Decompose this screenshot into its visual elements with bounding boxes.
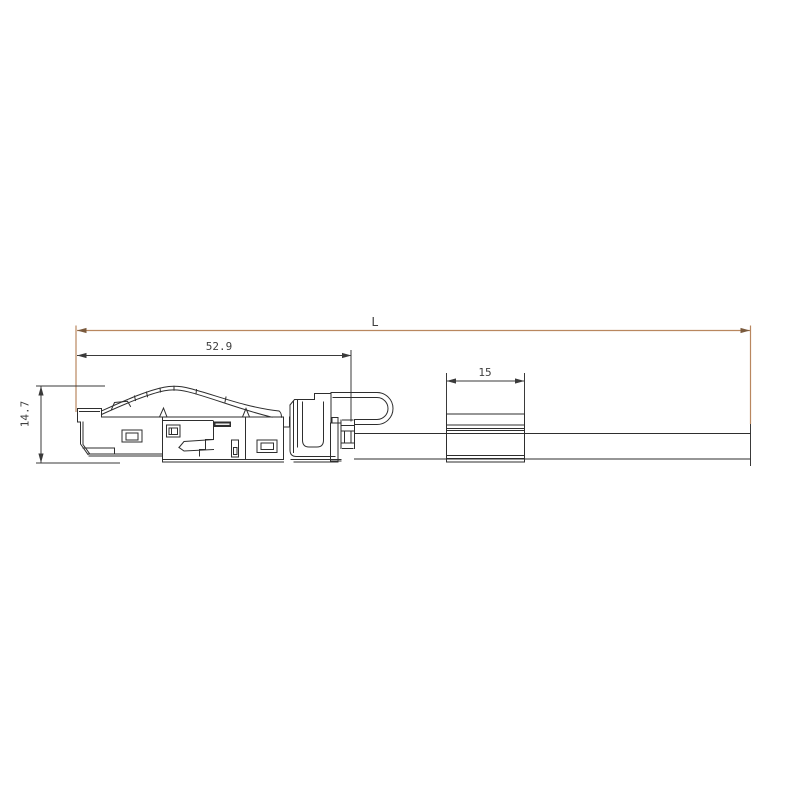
clamp-sides [341, 420, 355, 449]
latch-upper-curve [102, 386, 280, 411]
rear-boot [290, 394, 341, 463]
housing-step-outline [200, 422, 214, 457]
latch-slot-inner [234, 448, 238, 455]
dim-overall-length: L [76, 315, 751, 466]
cable [355, 434, 751, 460]
dim-connector-length: 52.9 [77, 340, 352, 422]
boot-top [290, 394, 331, 406]
plug-nose-top [78, 409, 102, 418]
arrowhead-right-icon [342, 353, 352, 358]
wire-window-inner [169, 428, 178, 435]
latch-lower-curve [102, 390, 273, 417]
rear-window-inner [261, 443, 274, 450]
arrowhead-left-icon [77, 328, 87, 333]
cable-loop-inner [333, 398, 388, 420]
label-sleeve [447, 414, 525, 462]
arrowhead-left-icon [447, 378, 457, 383]
plug-nose-front-edge [78, 409, 81, 423]
arrowhead-top-icon [38, 386, 43, 396]
wedge-bottom [179, 448, 214, 452]
connector-housing-middle [160, 408, 291, 462]
cable-loop [331, 393, 393, 425]
dim-sleeve-length: 15 [447, 366, 525, 414]
boot-cavity [303, 402, 324, 447]
dim-label-height: 14.7 [19, 401, 32, 428]
boot-rear-step [331, 418, 342, 462]
dim-label-overall-length: L [371, 315, 378, 329]
arrowhead-right-icon [741, 328, 751, 333]
arrowhead-bottom-icon [38, 454, 43, 464]
contact-window-inner [126, 433, 138, 440]
technical-drawing-canvas: L 52.9 15 14.7 [0, 0, 800, 800]
dim-label-connector-length: 52.9 [206, 340, 233, 353]
latch-catch-tab [160, 408, 168, 417]
boot-left-bottom [290, 405, 335, 457]
cable-gland-clamp [341, 420, 355, 449]
drawing-page: L 52.9 15 14.7 [0, 0, 800, 800]
label-sleeve-crimp-lines [447, 425, 525, 459]
dim-height: 14.7 [19, 386, 121, 463]
arrowhead-right-icon [515, 378, 525, 383]
label-sleeve-outline [447, 414, 525, 462]
latch-lever [102, 386, 282, 417]
clamp-ribs [341, 426, 355, 444]
latch-segment-ticks [135, 386, 227, 402]
dim-label-sleeve-length: 15 [478, 366, 491, 379]
latch-end-cap [279, 411, 282, 417]
arrowhead-left-icon [77, 353, 87, 358]
wedge-top [179, 440, 214, 448]
clamp-inner-edges [345, 431, 352, 443]
